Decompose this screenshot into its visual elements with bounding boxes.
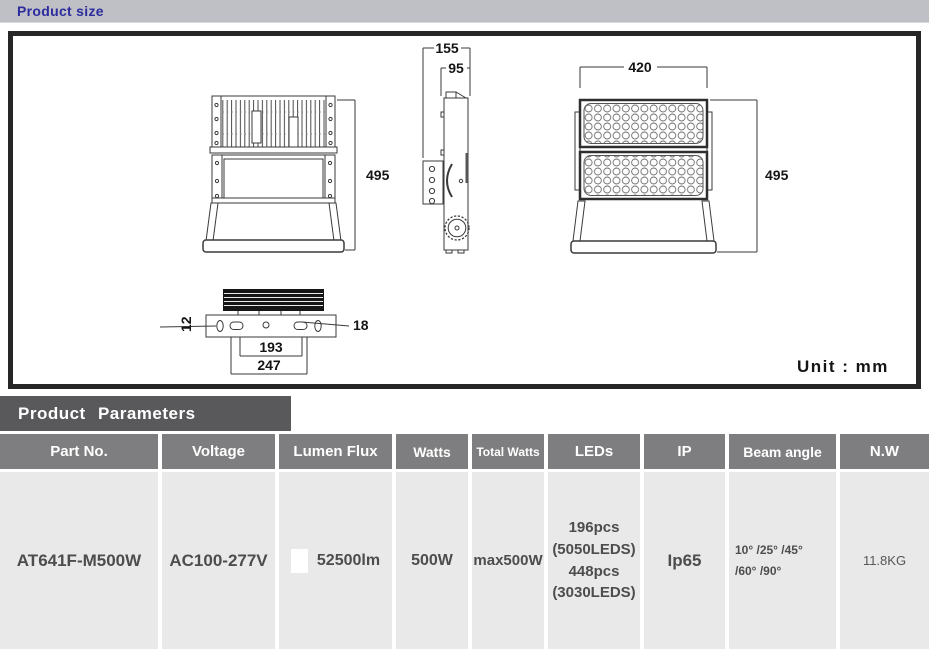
col-header-nw: N.W (840, 434, 929, 469)
leds-line-2: (5050LEDS) (552, 539, 635, 561)
product-size-panel (8, 31, 921, 389)
product-size-header: Product size (0, 0, 929, 23)
product-size-title: Product size (0, 0, 929, 22)
cell-total-watts: max500W (472, 472, 544, 649)
cell-voltage: AC100-277V (162, 472, 275, 649)
parameters-table: Part No. Voltage Lumen Flux Watts Total … (0, 434, 929, 649)
product-parameters-header: Product Parameters (0, 396, 291, 431)
cell-nw: 11.8KG (840, 472, 929, 649)
cell-beam-angle: 10° /25° /45° /60° /90° (729, 472, 836, 649)
col-header-beam-angle: Beam angle (729, 434, 836, 469)
col-header-leds: LEDs (548, 434, 640, 469)
beam-angle-line-2: /60° /90° (735, 561, 781, 582)
cell-part-no: AT641F-M500W (0, 472, 158, 649)
col-header-ip: IP (644, 434, 725, 469)
leds-line-4: (3030LEDS) (552, 582, 635, 604)
leds-line-3: 448pcs (569, 561, 620, 583)
col-header-lumen-flux: Lumen Flux (279, 434, 392, 469)
cell-lumen-flux: 52500lm (279, 472, 392, 649)
product-parameters-title: Product Parameters (0, 396, 291, 431)
cell-watts: 500W (396, 472, 468, 649)
col-header-total-watts: Total Watts (472, 434, 544, 469)
col-header-voltage: Voltage (162, 434, 275, 469)
lumen-flux-value: 52500lm (317, 552, 380, 570)
white-color-swatch (291, 549, 308, 573)
beam-angle-line-1: 10° /25° /45° (735, 540, 803, 561)
leds-line-1: 196pcs (569, 517, 620, 539)
col-header-watts: Watts (396, 434, 468, 469)
cell-ip: Ip65 (644, 472, 725, 649)
cell-leds: 196pcs (5050LEDS) 448pcs (3030LEDS) (548, 472, 640, 649)
col-header-part-no: Part No. (0, 434, 158, 469)
